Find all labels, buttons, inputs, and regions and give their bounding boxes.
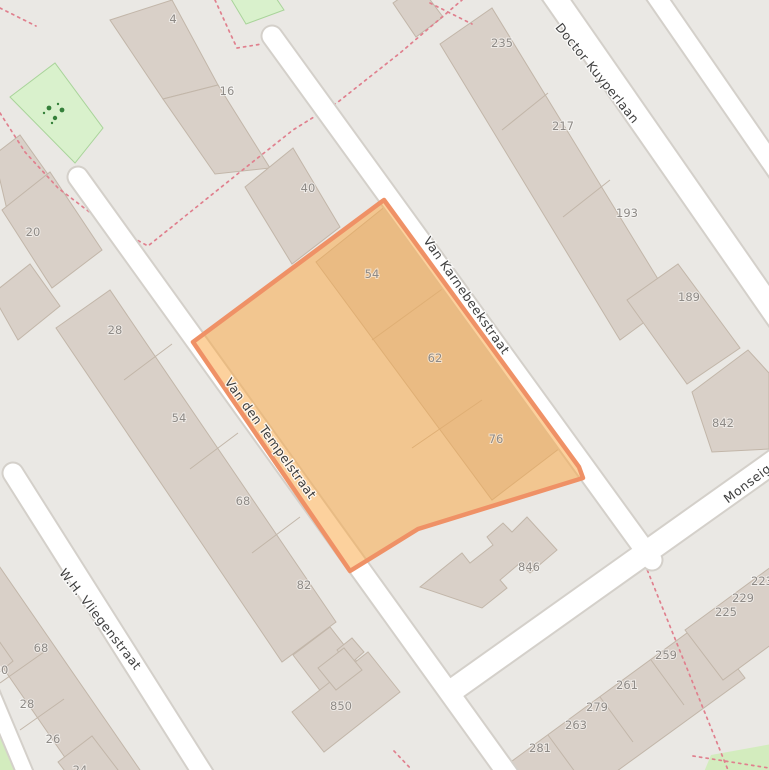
house-number: 235 [491, 36, 513, 50]
map-svg: Doctor Kuyperlaan Van Karnebeekstraat Va… [0, 0, 769, 770]
house-number: 281 [529, 741, 551, 755]
tree-icon [51, 122, 53, 124]
house-number: 846 [518, 560, 540, 574]
house-number: 68 [34, 641, 49, 655]
boundary-line [394, 751, 412, 770]
house-number: 850 [330, 699, 352, 713]
street-label-wh-vliegenstraat: W.H. Vliegenstraat [56, 566, 144, 673]
house-number: 24 [73, 763, 88, 770]
tree-icon [43, 112, 45, 114]
tree-icon [57, 103, 59, 105]
house-number: 225 [715, 605, 737, 619]
house-number: 82 [297, 578, 312, 592]
boundary-line [0, 8, 36, 26]
building-4 [110, 0, 218, 99]
house-number: 54 [365, 267, 380, 281]
house-number: 28 [20, 697, 35, 711]
house-number: 4 [169, 12, 176, 26]
house-number: 193 [616, 206, 638, 220]
house-number: 842 [712, 416, 734, 430]
house-number: 259 [655, 648, 677, 662]
house-number: 261 [616, 678, 638, 692]
house-number: 26 [46, 732, 61, 746]
building-row-235-193 [440, 8, 672, 340]
house-number: 263 [565, 718, 587, 732]
grass-patch-top [228, 0, 284, 24]
house-number: 16 [220, 84, 235, 98]
tree-icon [60, 108, 65, 113]
house-number: 76 [489, 432, 504, 446]
house-number: 54 [172, 411, 187, 425]
house-number: 62 [428, 351, 443, 365]
house-number: 68 [236, 494, 251, 508]
house-number: 217 [552, 119, 574, 133]
tree-icon [47, 106, 52, 111]
map-canvas[interactable]: Doctor Kuyperlaan Van Karnebeekstraat Va… [0, 0, 769, 770]
house-number: 229 [732, 591, 754, 605]
house-number: 20 [26, 225, 41, 239]
house-number: 28 [108, 323, 123, 337]
house-number: 279 [586, 700, 608, 714]
house-number: 40 [301, 181, 316, 195]
house-number: 223 [751, 574, 769, 588]
tree-icon [53, 116, 57, 120]
house-number: 189 [678, 290, 700, 304]
house-number: 30 [0, 663, 8, 677]
